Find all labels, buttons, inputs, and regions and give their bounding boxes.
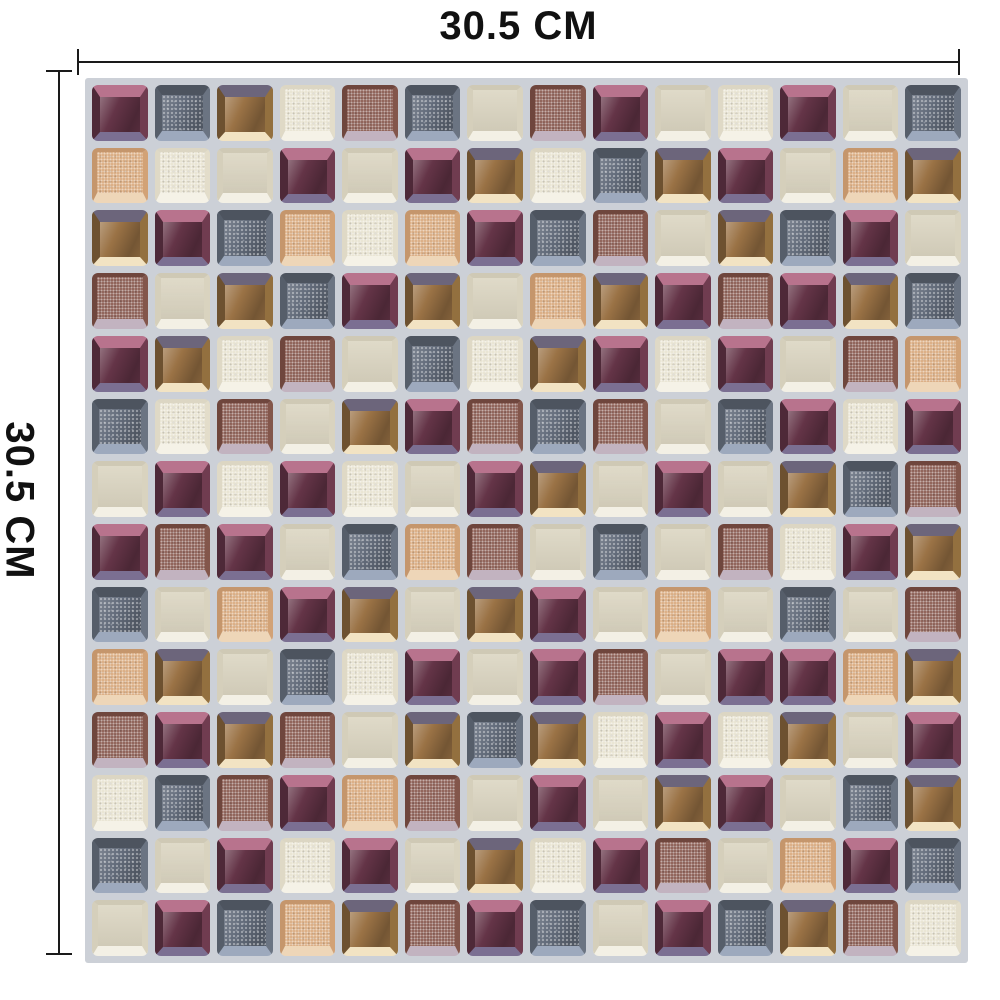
mosaic-tile-plum-glass — [530, 775, 586, 831]
mosaic-tile-plain-beige — [843, 587, 899, 643]
mosaic-tile-plum-glass — [843, 524, 899, 580]
mosaic-tile-rust-brown-speckled — [467, 524, 523, 580]
mosaic-tile-rust-brown-speckled — [217, 399, 273, 455]
mosaic-tile-amber-glass — [217, 712, 273, 768]
mosaic-tile-plain-beige — [280, 524, 336, 580]
mosaic-tile-plum-glass — [843, 838, 899, 894]
mosaic-tile-plain-beige — [155, 587, 211, 643]
mosaic-tile-rust-brown-speckled — [843, 900, 899, 956]
mosaic-tile-plum-glass — [593, 336, 649, 392]
mosaic-tile-amber-glass — [467, 148, 523, 204]
mosaic-tile-plain-beige — [905, 210, 961, 266]
mosaic-tile-rust-brown-speckled — [155, 524, 211, 580]
mosaic-tile-plum-glass — [593, 85, 649, 141]
mosaic-tile-plum-glass — [780, 85, 836, 141]
mosaic-tile-plum-glass — [405, 649, 461, 705]
mosaic-tile-slate-blue-speckled — [905, 838, 961, 894]
mosaic-tile-plum-glass — [718, 148, 774, 204]
mosaic-tile-sand-speckled — [655, 587, 711, 643]
mosaic-tile-plum-glass — [92, 524, 148, 580]
mosaic-tile-slate-blue-speckled — [905, 85, 961, 141]
mosaic-tile-ivory-speckled — [217, 461, 273, 517]
mosaic-tile-rust-brown-speckled — [342, 85, 398, 141]
mosaic-tile-ivory-speckled — [155, 148, 211, 204]
mosaic-tile-rust-brown-speckled — [467, 399, 523, 455]
mosaic-tile-plum-glass — [905, 399, 961, 455]
mosaic-tile-amber-glass — [905, 775, 961, 831]
mosaic-tile-amber-glass — [655, 775, 711, 831]
height-dimension-label: 30.5 CM — [0, 0, 98, 1000]
mosaic-tile-plain-beige — [655, 85, 711, 141]
mosaic-tile-amber-glass — [217, 273, 273, 329]
mosaic-tile-sand-speckled — [843, 148, 899, 204]
mosaic-tile-plain-beige — [593, 461, 649, 517]
mosaic-tile-slate-blue-speckled — [405, 336, 461, 392]
mosaic-tile-plum-glass — [217, 838, 273, 894]
mosaic-tile-amber-glass — [655, 148, 711, 204]
mosaic-tile-slate-blue-speckled — [280, 273, 336, 329]
mosaic-tile-plum-glass — [405, 148, 461, 204]
mosaic-tile-slate-blue-speckled — [530, 399, 586, 455]
mosaic-tile-plain-beige — [780, 336, 836, 392]
mosaic-tile-ivory-speckled — [92, 775, 148, 831]
mosaic-tile-ivory-speckled — [780, 524, 836, 580]
mosaic-tile-slate-blue-speckled — [718, 399, 774, 455]
mosaic-tile-plain-beige — [405, 587, 461, 643]
mosaic-tile-plain-beige — [593, 775, 649, 831]
mosaic-tile-rust-brown-speckled — [92, 712, 148, 768]
mosaic-tile-rust-brown-speckled — [718, 273, 774, 329]
width-dimension-line — [77, 61, 960, 63]
mosaic-tile-plain-beige — [467, 85, 523, 141]
mosaic-tile-plum-glass — [467, 900, 523, 956]
mosaic-tile-plain-beige — [655, 524, 711, 580]
mosaic-tile-plain-beige — [593, 900, 649, 956]
mosaic-tile-slate-blue-speckled — [593, 524, 649, 580]
mosaic-tile-rust-brown-speckled — [718, 524, 774, 580]
mosaic-tile-amber-glass — [155, 336, 211, 392]
mosaic-tile-amber-glass — [405, 712, 461, 768]
mosaic-tile-sand-speckled — [217, 587, 273, 643]
mosaic-tile-amber-glass — [905, 148, 961, 204]
mosaic-tile-slate-blue-speckled — [92, 838, 148, 894]
mosaic-tile-amber-glass — [342, 900, 398, 956]
mosaic-tile-plum-glass — [92, 85, 148, 141]
mosaic-tile-rust-brown-speckled — [280, 336, 336, 392]
mosaic-tile-ivory-speckled — [530, 148, 586, 204]
mosaic-tile-plum-glass — [155, 461, 211, 517]
mosaic-tile-plum-glass — [843, 210, 899, 266]
mosaic-tile-plain-beige — [593, 587, 649, 643]
mosaic-tile-plain-beige — [405, 838, 461, 894]
mosaic-tile-plum-glass — [780, 273, 836, 329]
mosaic-tile-amber-glass — [905, 524, 961, 580]
mosaic-tile-plum-glass — [280, 148, 336, 204]
mosaic-tile-rust-brown-speckled — [593, 399, 649, 455]
mosaic-tile-amber-glass — [593, 273, 649, 329]
mosaic-tile-plain-beige — [780, 775, 836, 831]
mosaic-tile-ivory-speckled — [280, 85, 336, 141]
mosaic-tile-sand-speckled — [405, 524, 461, 580]
mosaic-tile-rust-brown-speckled — [280, 712, 336, 768]
mosaic-tile-rust-brown-speckled — [593, 210, 649, 266]
mosaic-tile-plain-beige — [467, 649, 523, 705]
mosaic-tile-plum-glass — [905, 712, 961, 768]
mosaic-tile-slate-blue-speckled — [843, 461, 899, 517]
mosaic-tile-plain-beige — [405, 461, 461, 517]
mosaic-tile-slate-blue-speckled — [467, 712, 523, 768]
mosaic-tile-amber-glass — [405, 273, 461, 329]
mosaic-tile-plum-glass — [718, 336, 774, 392]
mosaic-tile-plum-glass — [342, 838, 398, 894]
mosaic-tile-amber-glass — [92, 210, 148, 266]
mosaic-tile-plain-beige — [342, 712, 398, 768]
mosaic-tile-sand-speckled — [280, 900, 336, 956]
mosaic-tile-amber-glass — [718, 210, 774, 266]
mosaic-tile-plain-beige — [780, 148, 836, 204]
mosaic-tile-slate-blue-speckled — [342, 524, 398, 580]
mosaic-tile-plum-glass — [467, 461, 523, 517]
mosaic-tile-ivory-speckled — [280, 838, 336, 894]
mosaic-tile-plain-beige — [155, 838, 211, 894]
mosaic-tile-slate-blue-speckled — [530, 900, 586, 956]
mosaic-tile-sand-speckled — [780, 838, 836, 894]
mosaic-tile-plain-beige — [467, 273, 523, 329]
mosaic-tile-plum-glass — [530, 587, 586, 643]
mosaic-tile-ivory-speckled — [655, 336, 711, 392]
mosaic-tile-sand-speckled — [280, 210, 336, 266]
mosaic-tile-plum-glass — [655, 900, 711, 956]
mosaic-tile-plain-beige — [342, 336, 398, 392]
mosaic-tile-ivory-speckled — [467, 336, 523, 392]
mosaic-tile-slate-blue-speckled — [405, 85, 461, 141]
mosaic-tile-plum-glass — [280, 775, 336, 831]
mosaic-tile-ivory-speckled — [905, 900, 961, 956]
mosaic-tile-plum-glass — [655, 461, 711, 517]
mosaic-tile-slate-blue-speckled — [718, 900, 774, 956]
mosaic-tile-slate-blue-speckled — [280, 649, 336, 705]
mosaic-tile-ivory-speckled — [155, 399, 211, 455]
mosaic-tile-plum-glass — [655, 273, 711, 329]
mosaic-tile-plum-glass — [718, 649, 774, 705]
mosaic-tile-slate-blue-speckled — [780, 587, 836, 643]
mosaic-tile-plain-beige — [718, 587, 774, 643]
mosaic-tile-amber-glass — [342, 399, 398, 455]
mosaic-tile-amber-glass — [530, 336, 586, 392]
mosaic-tile-plain-beige — [655, 399, 711, 455]
mosaic-tile-plum-glass — [155, 210, 211, 266]
mosaic-tile-amber-glass — [467, 838, 523, 894]
mosaic-tile-plum-glass — [280, 587, 336, 643]
mosaic-tile-slate-blue-speckled — [780, 210, 836, 266]
mosaic-tile-rust-brown-speckled — [530, 85, 586, 141]
mosaic-tile-plain-beige — [92, 461, 148, 517]
mosaic-tile-amber-glass — [467, 587, 523, 643]
mosaic-tile-plain-beige — [655, 210, 711, 266]
mosaic-tile-plum-glass — [217, 524, 273, 580]
mosaic-tile-sand-speckled — [405, 210, 461, 266]
mosaic-tile-plum-glass — [92, 336, 148, 392]
mosaic-tile-amber-glass — [155, 649, 211, 705]
mosaic-tile-amber-glass — [342, 587, 398, 643]
mosaic-tile-ivory-speckled — [217, 336, 273, 392]
mosaic-tile-plum-glass — [405, 399, 461, 455]
mosaic-tile-plum-glass — [655, 712, 711, 768]
mosaic-tile-rust-brown-speckled — [405, 775, 461, 831]
mosaic-tile-slate-blue-speckled — [843, 775, 899, 831]
mosaic-tile-sand-speckled — [92, 649, 148, 705]
width-dimension-label: 30.5 CM — [77, 4, 960, 49]
mosaic-tile-sand-speckled — [92, 148, 148, 204]
mosaic-tile-slate-blue-speckled — [530, 210, 586, 266]
mosaic-tile-plum-glass — [155, 712, 211, 768]
mosaic-tile-plain-beige — [92, 900, 148, 956]
mosaic-tile-plain-beige — [155, 273, 211, 329]
mosaic-tile-ivory-speckled — [718, 712, 774, 768]
mosaic-tile-plum-glass — [155, 900, 211, 956]
mosaic-tile-plain-beige — [655, 649, 711, 705]
mosaic-tile-amber-glass — [780, 461, 836, 517]
mosaic-tile-ivory-speckled — [530, 838, 586, 894]
mosaic-tile-rust-brown-speckled — [843, 336, 899, 392]
mosaic-tile-rust-brown-speckled — [217, 775, 273, 831]
mosaic-tile-plum-glass — [780, 399, 836, 455]
mosaic-tile-plain-beige — [843, 85, 899, 141]
mosaic-tile-slate-blue-speckled — [217, 210, 273, 266]
mosaic-tile-rust-brown-speckled — [593, 649, 649, 705]
mosaic-tile-sand-speckled — [905, 336, 961, 392]
mosaic-tile-ivory-speckled — [593, 712, 649, 768]
mosaic-tile-plum-glass — [467, 210, 523, 266]
mosaic-tile-plain-beige — [843, 712, 899, 768]
mosaic-tile-plum-glass — [280, 461, 336, 517]
mosaic-tile-plum-glass — [593, 838, 649, 894]
mosaic-tile-amber-glass — [217, 85, 273, 141]
mosaic-tile-ivory-speckled — [342, 210, 398, 266]
mosaic-tile-ivory-speckled — [718, 85, 774, 141]
mosaic-tile-plain-beige — [342, 148, 398, 204]
mosaic-tile-plum-glass — [530, 649, 586, 705]
product-dimension-diagram: 30.5 CM 30.5 CM — [0, 0, 1000, 1000]
mosaic-tile-plum-glass — [718, 775, 774, 831]
mosaic-tile-ivory-speckled — [843, 399, 899, 455]
mosaic-tile-rust-brown-speckled — [905, 461, 961, 517]
mosaic-tile-ivory-speckled — [342, 461, 398, 517]
mosaic-tile-sand-speckled — [843, 649, 899, 705]
mosaic-tile-slate-blue-speckled — [92, 587, 148, 643]
mosaic-tile-plum-glass — [780, 649, 836, 705]
mosaic-tile-amber-glass — [530, 712, 586, 768]
mosaic-tile-slate-blue-speckled — [905, 273, 961, 329]
mosaic-tile-slate-blue-speckled — [593, 148, 649, 204]
mosaic-tile-slate-blue-speckled — [217, 900, 273, 956]
height-dimension-line — [58, 70, 60, 955]
mosaic-tile-amber-glass — [780, 900, 836, 956]
mosaic-sheet — [85, 78, 968, 963]
mosaic-tile-plain-beige — [718, 461, 774, 517]
mosaic-tile-rust-brown-speckled — [905, 587, 961, 643]
mosaic-tile-ivory-speckled — [342, 649, 398, 705]
mosaic-tile-plain-beige — [718, 838, 774, 894]
mosaic-tile-slate-blue-speckled — [155, 775, 211, 831]
mosaic-tile-sand-speckled — [530, 273, 586, 329]
mosaic-tile-slate-blue-speckled — [155, 85, 211, 141]
mosaic-tile-plain-beige — [467, 775, 523, 831]
mosaic-tile-plain-beige — [217, 148, 273, 204]
mosaic-tile-amber-glass — [905, 649, 961, 705]
mosaic-tile-amber-glass — [530, 461, 586, 517]
mosaic-tile-rust-brown-speckled — [655, 838, 711, 894]
mosaic-tile-plum-glass — [342, 273, 398, 329]
mosaic-tile-slate-blue-speckled — [92, 399, 148, 455]
mosaic-tile-rust-brown-speckled — [92, 273, 148, 329]
mosaic-tile-plain-beige — [217, 649, 273, 705]
mosaic-tile-rust-brown-speckled — [405, 900, 461, 956]
mosaic-tile-sand-speckled — [342, 775, 398, 831]
mosaic-tile-amber-glass — [843, 273, 899, 329]
mosaic-tile-plain-beige — [530, 524, 586, 580]
mosaic-tile-plain-beige — [280, 399, 336, 455]
mosaic-tile-amber-glass — [780, 712, 836, 768]
